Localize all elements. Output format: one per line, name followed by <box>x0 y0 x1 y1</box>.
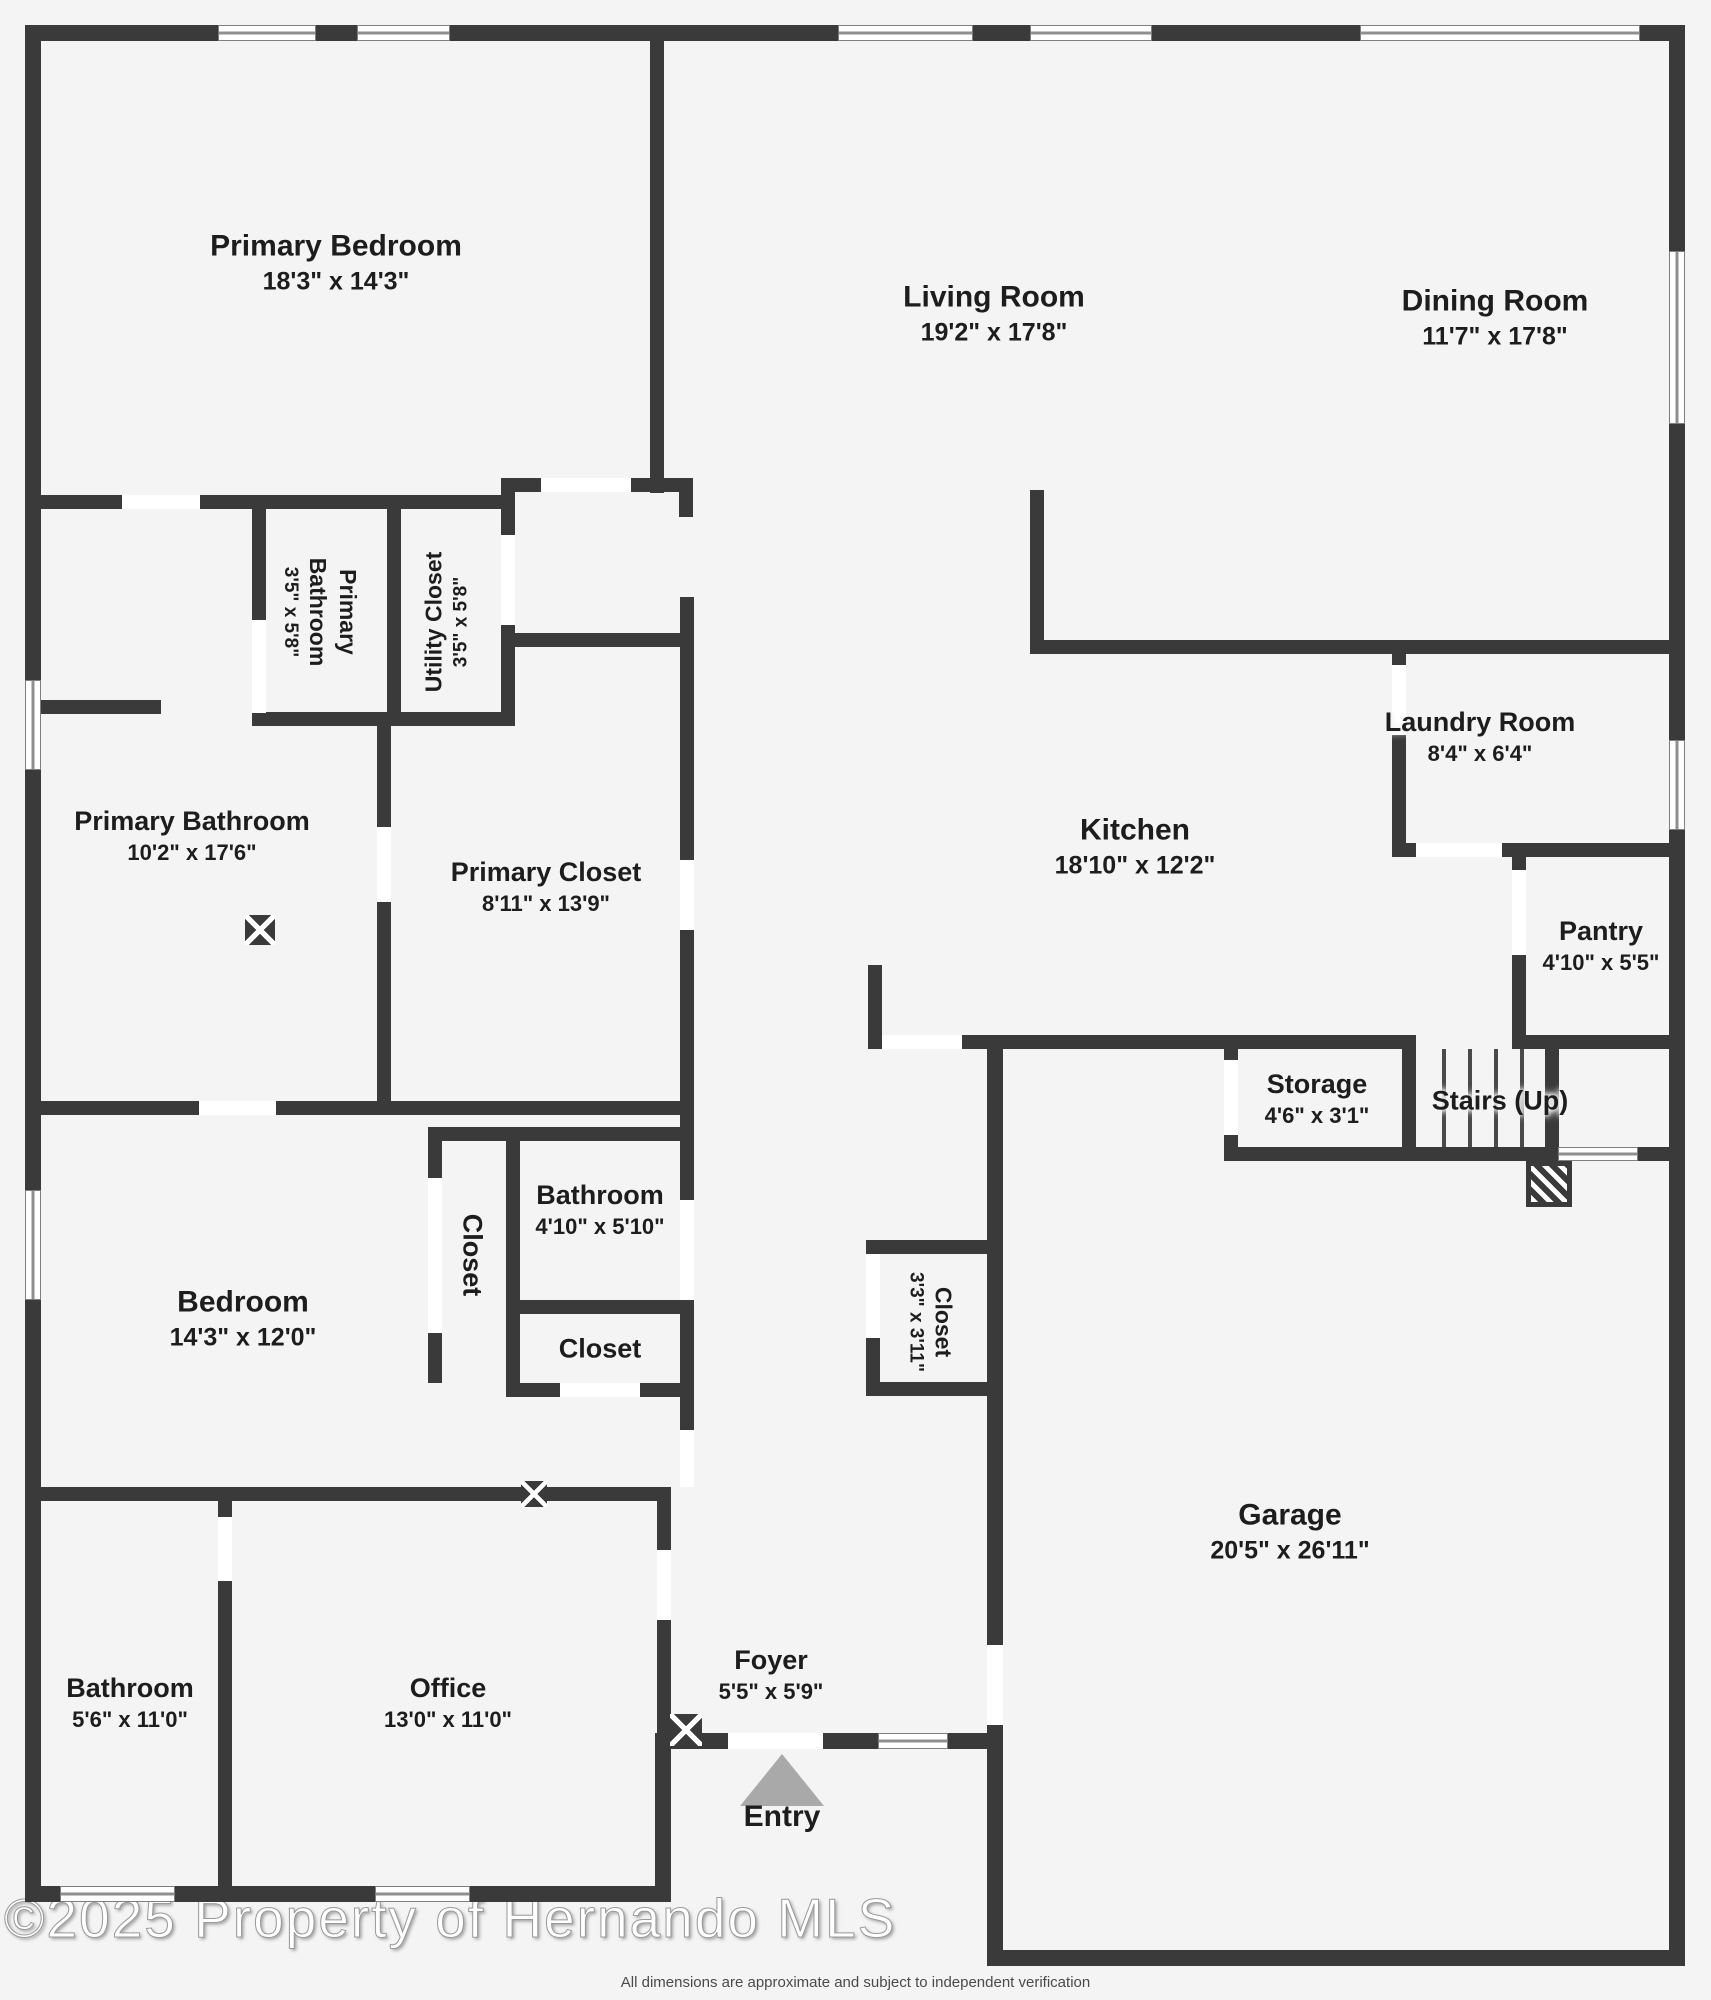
wall <box>377 726 391 827</box>
room-label-primary-bathroom-small: Primary Bathroom3'5" x 5'8" <box>278 527 362 697</box>
room-label-primary-closet: Primary Closet8'11" x 13'9" <box>451 855 642 919</box>
room-dimensions: 4'10" x 5'10" <box>535 1213 664 1242</box>
wall <box>41 1101 199 1115</box>
room-dimensions: 3'3" x 3'11" <box>903 1242 928 1402</box>
room-dimensions: 10'2" x 17'6" <box>74 839 310 868</box>
room-name: Bedroom <box>170 1282 317 1321</box>
room-dimensions: 20'5" x 26'11" <box>1210 1534 1369 1567</box>
room-dimensions: 19'2" x 17'8" <box>903 316 1085 349</box>
room-label-closet-hall: Closet <box>559 1331 642 1366</box>
room-name: Kitchen <box>1055 810 1216 849</box>
room-label-foyer: Foyer5'5" x 5'9" <box>719 1643 824 1707</box>
wall <box>987 1950 1685 1966</box>
room-name: Utility Closet <box>420 517 450 727</box>
room-label-dining-room: Dining Room11'7" x 17'8" <box>1402 281 1589 353</box>
wall <box>252 712 515 726</box>
wall <box>41 700 161 714</box>
window <box>1030 25 1152 41</box>
wall <box>25 25 41 1902</box>
room-label-living-room: Living Room19'2" x 17'8" <box>903 277 1085 349</box>
room-label-bedroom: Bedroom14'3" x 12'0" <box>170 1282 317 1354</box>
room-dimensions: 13'0" x 11'0" <box>384 1706 512 1735</box>
door-opening <box>541 478 631 492</box>
room-dimensions: 14'3" x 12'0" <box>170 1321 317 1354</box>
wall <box>679 492 693 517</box>
room-label-closet-garage: Closet3'3" x 3'11" <box>903 1242 958 1402</box>
wall <box>655 1733 671 1902</box>
window <box>357 25 450 41</box>
room-name: Bathroom <box>535 1178 664 1213</box>
room-name: Primary Closet <box>451 855 642 890</box>
door-opening <box>728 1733 823 1749</box>
wall <box>1030 640 1685 654</box>
wall <box>1392 843 1416 857</box>
wall <box>506 1300 694 1314</box>
room-dimensions: 3'5" x 5'8" <box>450 517 475 727</box>
window <box>218 25 316 41</box>
wall <box>218 1581 232 1900</box>
room-label-laundry-room: Laundry Room8'4" x 6'4" <box>1385 705 1576 769</box>
room-name: Pantry <box>1543 914 1660 949</box>
door-opening <box>199 1101 276 1115</box>
door-opening <box>501 535 515 625</box>
room-label-bathroom-front: Bathroom5'6" x 11'0" <box>66 1671 194 1735</box>
post <box>670 1714 702 1746</box>
room-name: Storage <box>1265 1067 1370 1102</box>
room-label-kitchen: Kitchen18'10" x 12'2" <box>1055 810 1216 882</box>
room-name: Closet <box>559 1331 642 1366</box>
wall <box>200 495 515 509</box>
door-opening <box>680 860 694 930</box>
wall <box>987 1725 1003 1966</box>
wall <box>650 41 664 493</box>
room-name: Primary Bathroom <box>302 527 362 697</box>
wall <box>1224 1147 1416 1161</box>
wall <box>657 1501 671 1550</box>
door-opening <box>122 495 200 509</box>
wall <box>501 478 515 535</box>
window <box>1669 740 1685 830</box>
room-label-primary-bathroom: Primary Bathroom10'2" x 17'6" <box>74 804 310 868</box>
wall <box>655 1733 1003 1749</box>
wall <box>428 1140 442 1178</box>
room-name: Office <box>384 1671 512 1706</box>
room-dimensions: 4'10" x 5'5" <box>1543 949 1660 978</box>
wall <box>1402 1147 1558 1161</box>
room-label-garage: Garage20'5" x 26'11" <box>1210 1495 1369 1567</box>
wall <box>1030 490 1044 654</box>
wall <box>1402 1049 1416 1161</box>
room-dimensions: 5'5" x 5'9" <box>719 1678 824 1707</box>
wall <box>987 1049 1003 1645</box>
room-name: Living Room <box>903 277 1085 316</box>
wall <box>1512 857 1526 870</box>
wall <box>41 1487 671 1501</box>
door-opening <box>680 1430 694 1487</box>
door-opening <box>657 1550 671 1620</box>
room-name: Garage <box>1210 1495 1369 1534</box>
room-label-closet-bedroom: Closet <box>454 1214 489 1297</box>
door-opening <box>987 1645 1003 1725</box>
wall <box>680 930 694 1200</box>
window <box>1669 251 1685 424</box>
door-opening <box>252 620 266 713</box>
wall <box>631 478 693 492</box>
floor-plan: ©2025 Property of Hernando MLS All dimen… <box>0 0 1711 2000</box>
wall <box>515 478 541 492</box>
window <box>60 1886 175 1902</box>
room-label-stairs: Stairs (Up) <box>1432 1083 1569 1118</box>
disclaimer-text: All dimensions are approximate and subje… <box>0 1974 1711 1991</box>
door-opening <box>1512 870 1526 955</box>
chimney-hatch <box>1526 1161 1572 1207</box>
wall <box>506 1383 560 1397</box>
room-dimensions: 3'5" x 5'8" <box>278 527 303 697</box>
door-opening <box>882 1035 962 1049</box>
room-dimensions: 4'6" x 3'1" <box>1265 1102 1370 1131</box>
room-name: Stairs (Up) <box>1432 1083 1569 1118</box>
window <box>1558 1147 1638 1161</box>
room-name: Dining Room <box>1402 281 1589 320</box>
door-opening <box>866 1254 880 1338</box>
room-name: Primary Bedroom <box>210 226 462 265</box>
room-name: Laundry Room <box>1385 705 1576 740</box>
room-label-storage: Storage4'6" x 3'1" <box>1265 1067 1370 1131</box>
wall <box>680 1300 694 1430</box>
wall <box>1224 1049 1238 1060</box>
wall <box>657 1620 671 1733</box>
door-opening <box>1416 843 1502 857</box>
door-opening <box>377 827 391 902</box>
room-label-primary-bedroom: Primary Bedroom18'3" x 14'3" <box>210 226 462 298</box>
post <box>521 1481 547 1507</box>
wall <box>218 1501 232 1517</box>
room-dimensions: 11'7" x 17'8" <box>1402 320 1589 353</box>
room-name: Primary Bathroom <box>74 804 310 839</box>
room-name: Closet <box>454 1214 489 1297</box>
room-dimensions: 18'10" x 12'2" <box>1055 849 1216 882</box>
window <box>838 25 973 41</box>
room-label-bathroom-hall: Bathroom4'10" x 5'10" <box>535 1178 664 1242</box>
door-opening <box>680 1200 694 1300</box>
room-dimensions: 5'6" x 11'0" <box>66 1706 194 1735</box>
wall <box>387 495 401 726</box>
room-dimensions: 18'3" x 14'3" <box>210 265 462 298</box>
wall <box>501 633 693 647</box>
wall <box>1392 654 1406 665</box>
room-label-office: Office13'0" x 11'0" <box>384 1671 512 1735</box>
entry-label: Entry <box>744 1800 821 1834</box>
door-opening <box>560 1383 640 1397</box>
room-name: Foyer <box>719 1643 824 1678</box>
room-label-utility-closet: Utility Closet3'5" x 5'8" <box>420 517 475 727</box>
wall <box>276 1101 694 1115</box>
wall <box>1512 955 1526 1049</box>
wall <box>41 495 122 509</box>
room-dimensions: 8'11" x 13'9" <box>451 890 642 919</box>
window <box>25 1190 41 1300</box>
door-opening <box>1224 1060 1238 1135</box>
wall <box>868 1035 882 1049</box>
wall <box>506 1127 694 1141</box>
window <box>1360 25 1640 41</box>
wall <box>428 1333 442 1383</box>
room-name: Bathroom <box>66 1671 194 1706</box>
wall <box>1638 1147 1669 1161</box>
window <box>375 1886 470 1902</box>
room-name: Closet <box>927 1242 957 1402</box>
door-opening <box>218 1517 232 1581</box>
wall <box>1526 1035 1685 1049</box>
wall <box>866 1240 880 1254</box>
room-dimensions: 8'4" x 6'4" <box>1385 740 1576 769</box>
room-label-pantry: Pantry4'10" x 5'5" <box>1543 914 1660 978</box>
entry-arrow-icon <box>740 1754 824 1806</box>
wall <box>1502 843 1685 857</box>
post <box>245 915 275 945</box>
wall <box>252 495 266 620</box>
wall <box>962 1035 1416 1049</box>
window <box>25 680 41 770</box>
wall <box>680 597 694 860</box>
window <box>878 1733 948 1749</box>
wall <box>506 1127 520 1397</box>
door-opening <box>428 1178 442 1333</box>
wall <box>377 902 391 1101</box>
